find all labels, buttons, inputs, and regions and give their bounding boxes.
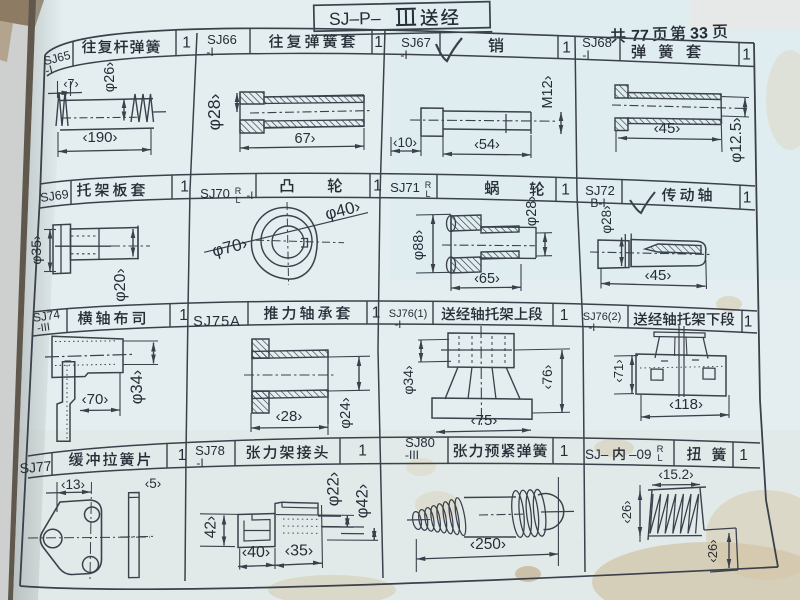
svg-text:φ22›: φ22›	[325, 472, 343, 507]
svg-text:φ42›: φ42›	[354, 484, 372, 519]
svg-text:‹26›: ‹26›	[705, 539, 720, 562]
svg-text:-III: -III	[405, 448, 419, 462]
svg-text:‹45›: ‹45›	[645, 267, 672, 284]
svg-text:1: 1	[743, 190, 752, 207]
svg-text:1: 1	[742, 46, 751, 63]
svg-text:SJ75A: SJ75A	[193, 314, 241, 330]
svg-text:1: 1	[561, 182, 570, 199]
svg-text:1: 1	[373, 178, 382, 195]
svg-text:‹13›: ‹13›	[61, 477, 85, 492]
svg-text:–09: –09	[629, 447, 652, 462]
svg-text:‹190›: ‹190›	[82, 129, 117, 146]
svg-text:77: 77	[631, 28, 649, 45]
svg-text:‹7›: ‹7›	[63, 77, 78, 91]
svg-text:1: 1	[372, 304, 381, 321]
svg-text:‹65›: ‹65›	[474, 271, 500, 287]
svg-text:-I: -I	[247, 190, 254, 202]
svg-text:-I: -I	[589, 322, 596, 334]
svg-text:‹45›: ‹45›	[654, 120, 681, 137]
svg-text:-I: -I	[206, 45, 213, 59]
svg-text:φ20›: φ20›	[112, 268, 129, 302]
svg-text:42›: 42›	[203, 516, 220, 538]
svg-text:‹54›: ‹54›	[474, 137, 500, 153]
svg-text:1: 1	[180, 179, 189, 196]
svg-text:1: 1	[179, 307, 188, 324]
svg-text:67›: 67›	[295, 131, 316, 147]
svg-text:‹10›: ‹10›	[393, 135, 417, 150]
svg-text:SJ77: SJ77	[19, 458, 52, 477]
svg-text:1: 1	[562, 39, 571, 56]
svg-text:M12›: M12›	[540, 75, 556, 108]
svg-text:φ88›: φ88›	[411, 230, 427, 261]
svg-text:‹71›: ‹71›	[611, 359, 626, 382]
svg-text:‹15.2›: ‹15.2›	[658, 467, 693, 482]
svg-text:-I: -I	[196, 456, 203, 470]
svg-text:φ34›: φ34›	[128, 370, 146, 405]
svg-text:L: L	[657, 453, 662, 464]
svg-text:φ12.5›: φ12.5›	[728, 117, 745, 162]
svg-text:-III: -III	[36, 321, 50, 335]
svg-text:1: 1	[739, 447, 748, 464]
svg-text:‹75›: ‹75›	[471, 412, 498, 429]
svg-text:φ35›: φ35›	[28, 235, 44, 265]
svg-text:-I: -I	[395, 319, 402, 331]
svg-text:‹26›: ‹26›	[619, 500, 634, 523]
svg-text:1: 1	[182, 34, 191, 51]
svg-text:1: 1	[374, 34, 383, 51]
svg-text:SJ71: SJ71	[390, 180, 420, 195]
svg-text:1: 1	[744, 314, 753, 331]
svg-text:SJ–P–: SJ–P–	[329, 8, 381, 29]
svg-text:-I: -I	[400, 48, 407, 62]
svg-text:‹28›: ‹28›	[276, 408, 303, 425]
svg-text:1: 1	[178, 447, 187, 464]
svg-text:1: 1	[560, 443, 569, 460]
svg-text:φ28›: φ28›	[599, 205, 614, 233]
svg-text:‹35›: ‹35›	[285, 543, 313, 560]
svg-text:‹70›: ‹70›	[82, 391, 109, 408]
svg-text:φ28›: φ28›	[204, 94, 224, 131]
svg-text:L: L	[425, 189, 430, 199]
svg-text:‹118›: ‹118›	[669, 396, 703, 413]
svg-text:‹40›: ‹40›	[242, 544, 270, 561]
svg-text:L: L	[235, 195, 240, 205]
svg-text:SJ70: SJ70	[200, 186, 230, 201]
svg-text:1: 1	[560, 307, 569, 324]
svg-text:-I: -I	[582, 48, 589, 62]
svg-text:1: 1	[358, 443, 367, 460]
svg-text:‹5›: ‹5›	[145, 476, 162, 491]
svg-text:φ24›: φ24›	[337, 397, 354, 428]
svg-text:‹76›: ‹76›	[539, 364, 555, 389]
svg-text:φ26›: φ26›	[102, 62, 118, 93]
svg-text:φ28›: φ28›	[524, 196, 540, 227]
svg-text:‹250›: ‹250›	[470, 536, 506, 553]
svg-text:SJ–: SJ–	[585, 447, 609, 462]
svg-text:φ34›: φ34›	[400, 365, 416, 395]
